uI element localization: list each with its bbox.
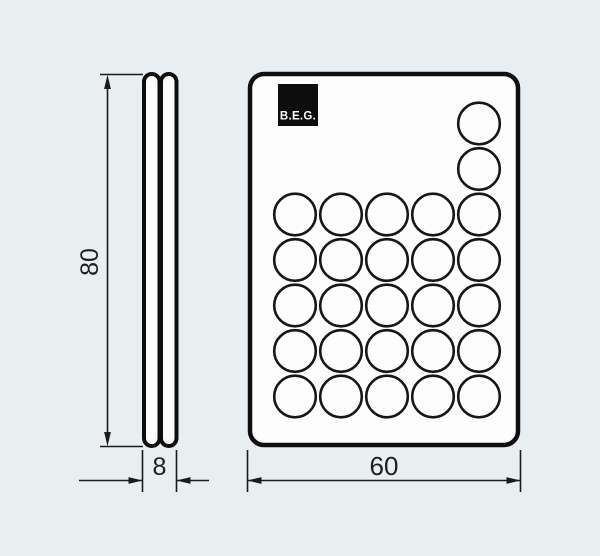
button-circle (458, 103, 500, 145)
button-circle (366, 376, 408, 418)
dimension-thickness-label: 8 (153, 453, 167, 481)
button-circle (320, 239, 362, 281)
button-circle (458, 285, 500, 327)
button-circle (412, 239, 454, 281)
button-circle (274, 376, 316, 418)
brand-logo: B.E.G. (278, 84, 318, 126)
button-circle (458, 194, 500, 236)
button-circle (412, 330, 454, 372)
button-circle (320, 285, 362, 327)
button-circle (412, 194, 454, 236)
dimension-height-label: 80 (76, 248, 104, 276)
button-circle (320, 194, 362, 236)
button-circle (458, 148, 500, 190)
dimension-width-label: 60 (370, 451, 399, 481)
side-view-back-layer (161, 74, 177, 446)
button-circle (274, 330, 316, 372)
button-circle (458, 330, 500, 372)
drawing-canvas: 80 8 B.E.G. (0, 0, 600, 556)
button-circle (274, 194, 316, 236)
button-circle (320, 330, 362, 372)
technical-drawing-page: 80 8 B.E.G. (0, 0, 600, 556)
button-circle (320, 376, 362, 418)
side-view-front-layer (144, 74, 160, 446)
button-circle (458, 239, 500, 281)
button-circle (274, 239, 316, 281)
front-view: B.E.G. (250, 74, 518, 445)
button-circle (366, 194, 408, 236)
button-circle (366, 330, 408, 372)
button-circle (412, 285, 454, 327)
button-circle (412, 376, 454, 418)
button-circle (274, 285, 316, 327)
button-circle (366, 285, 408, 327)
brand-logo-label: B.E.G. (280, 111, 316, 123)
side-view (144, 74, 177, 446)
button-circle (366, 239, 408, 281)
button-circle (458, 376, 500, 418)
